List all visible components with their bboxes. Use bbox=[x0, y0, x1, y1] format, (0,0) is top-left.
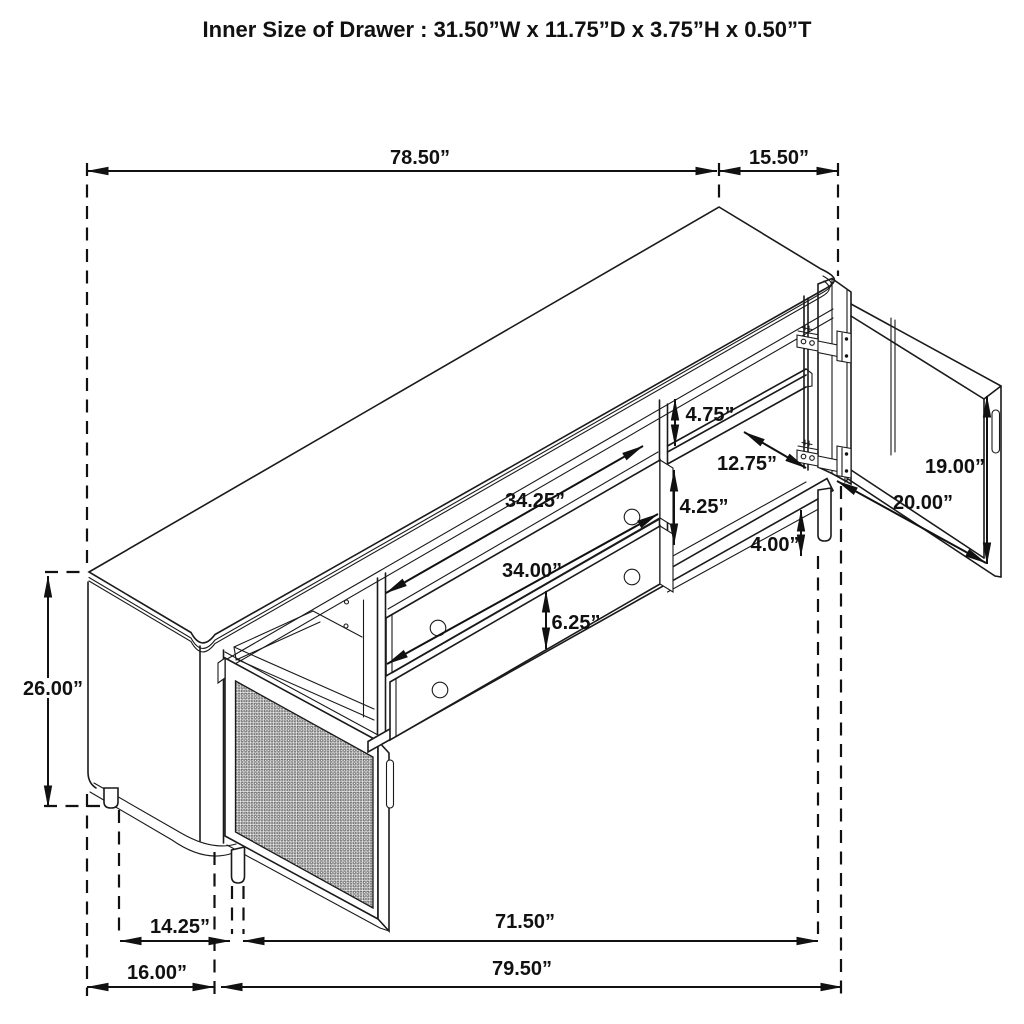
svg-text:19.00”: 19.00” bbox=[925, 456, 985, 478]
svg-text:14.25”: 14.25” bbox=[150, 916, 210, 938]
svg-text:Inner Size of Drawer : 31.50”W: Inner Size of Drawer : 31.50”W x 11.75”D… bbox=[203, 17, 813, 42]
svg-text:16.00”: 16.00” bbox=[127, 962, 187, 984]
svg-text:4.75”: 4.75” bbox=[686, 404, 735, 426]
svg-text:6.25”: 6.25” bbox=[552, 612, 601, 634]
svg-text:71.50”: 71.50” bbox=[495, 911, 555, 933]
svg-text:20.00”: 20.00” bbox=[893, 492, 953, 514]
svg-text:4.00”: 4.00” bbox=[751, 534, 800, 556]
svg-text:34.25”: 34.25” bbox=[505, 490, 565, 512]
svg-text:79.50”: 79.50” bbox=[492, 958, 552, 980]
svg-text:26.00”: 26.00” bbox=[23, 678, 83, 700]
svg-text:15.50”: 15.50” bbox=[749, 147, 809, 169]
svg-text:34.00”: 34.00” bbox=[502, 560, 562, 582]
svg-text:4.25”: 4.25” bbox=[680, 496, 729, 518]
svg-text:78.50”: 78.50” bbox=[390, 147, 450, 169]
svg-text:12.75”: 12.75” bbox=[717, 453, 777, 475]
